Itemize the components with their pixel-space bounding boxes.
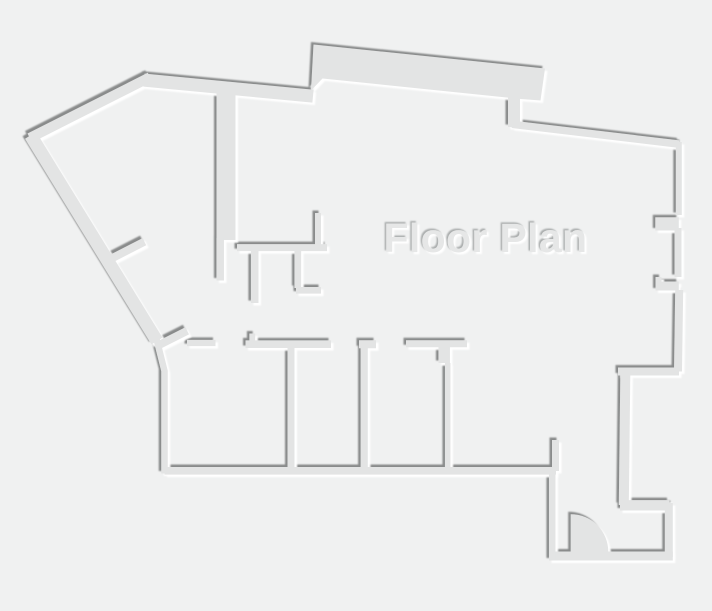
- svg-text:Floor Plan: Floor Plan: [384, 215, 588, 261]
